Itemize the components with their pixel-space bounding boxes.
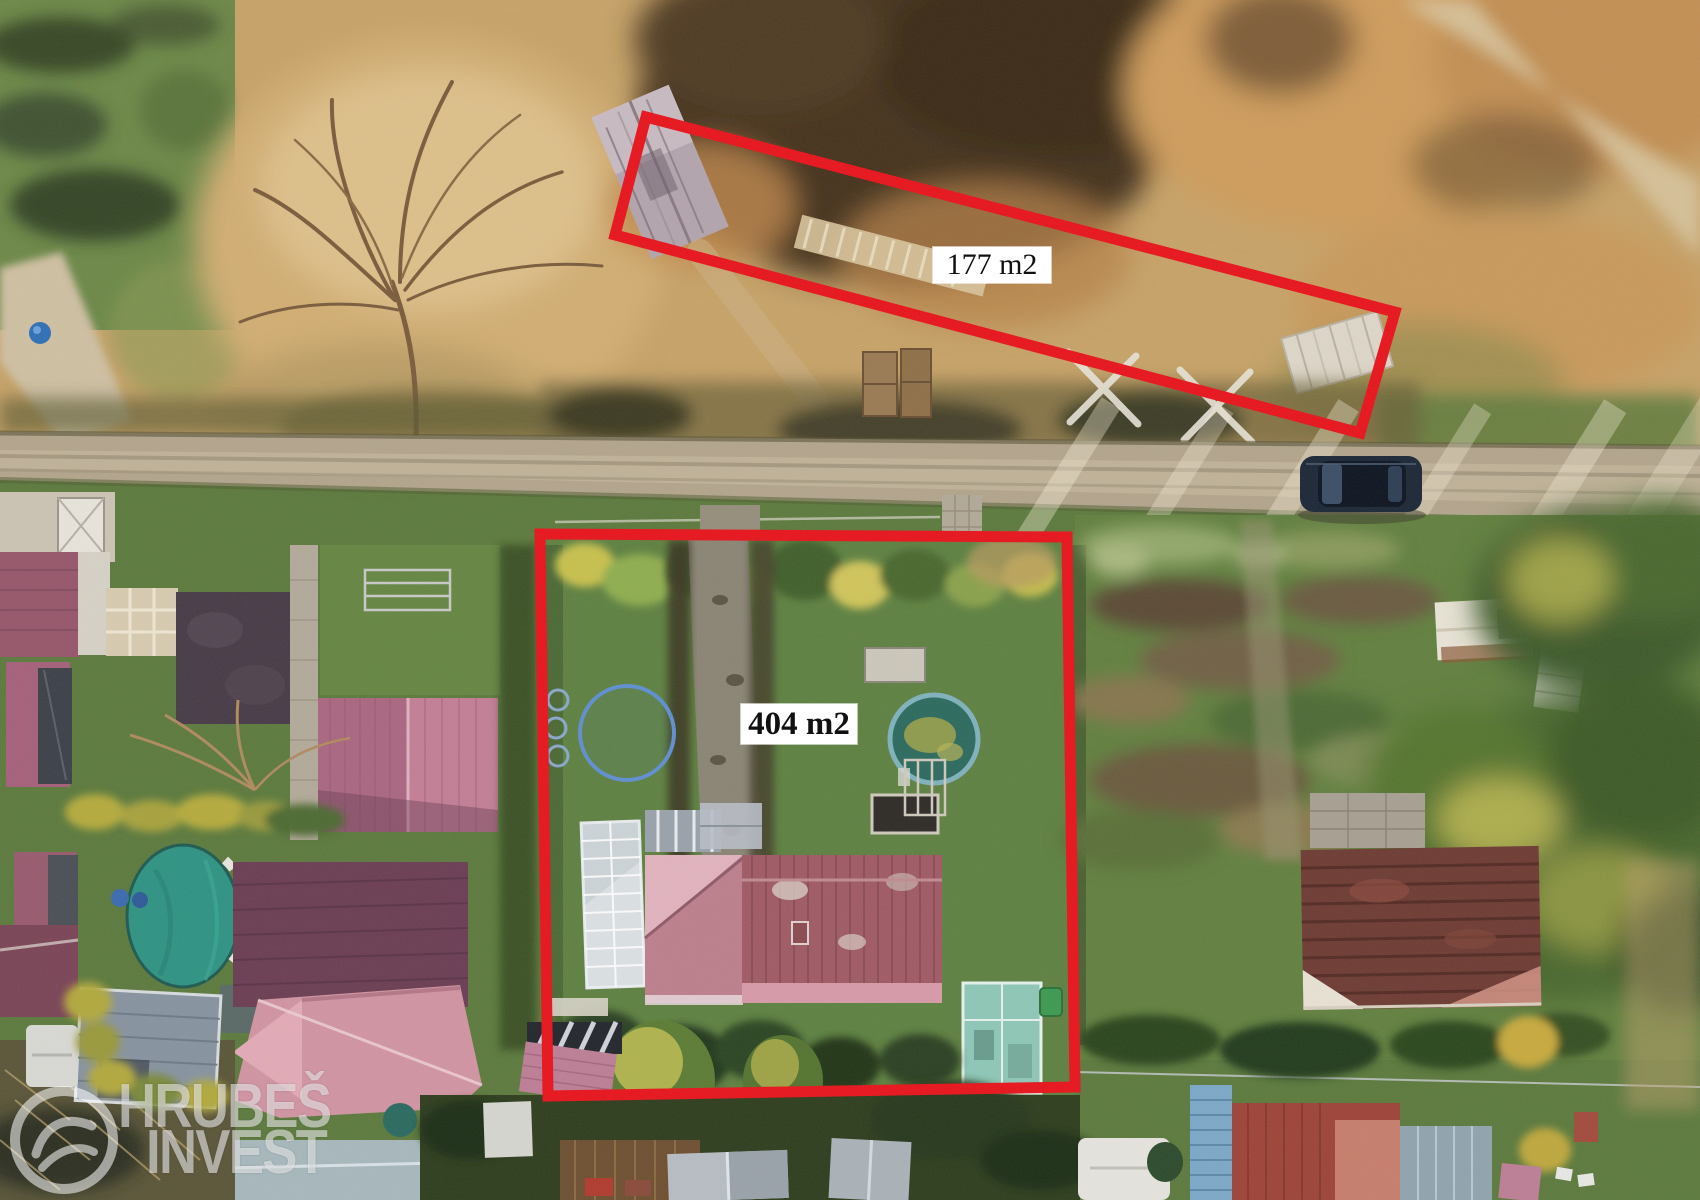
photo-scene: [0, 0, 1700, 1200]
plot-area-label-404: 404 m2: [741, 704, 857, 744]
grain-overlay: [0, 0, 1700, 1200]
aerial-drone-photo: 177 m2 404 m2 HRUBEŠ INVEST: [0, 0, 1700, 1200]
plot-area-label-177: 177 m2: [933, 247, 1051, 283]
